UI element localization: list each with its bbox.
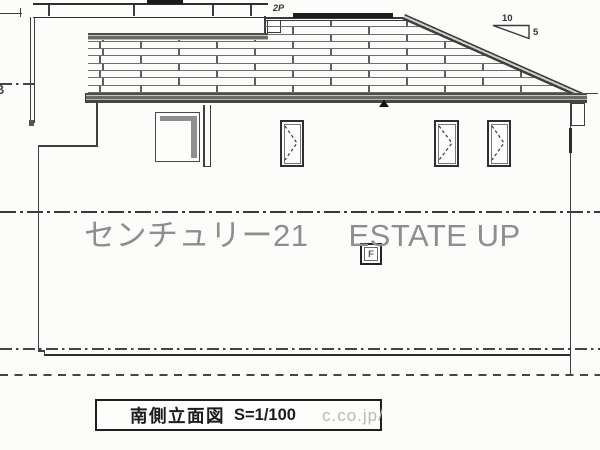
parapet-tick (133, 5, 135, 16)
eave-fascia-band (85, 93, 587, 103)
parapet-top-dark-bar (147, 0, 183, 4)
ground-line (0, 374, 600, 376)
left-margin-glyph-clip: B (0, 81, 6, 96)
floor-label-2p: 2P (273, 3, 284, 13)
casement-window (487, 120, 511, 167)
roof-tile-row (88, 49, 585, 56)
slope-indicator-triangle (492, 24, 532, 41)
slope-rise-label: 5 (533, 27, 538, 38)
triangle-marker (379, 100, 389, 107)
solar-panel-bar (293, 13, 393, 19)
parapet-tick (212, 5, 214, 16)
roof-tile-row (88, 78, 585, 85)
vent-pipe-foot (203, 166, 211, 168)
casement-opening-mark (489, 122, 509, 165)
casement-window (434, 120, 459, 167)
downspout (571, 103, 585, 126)
foundation-line (44, 354, 570, 357)
wall-box-window-frame (160, 116, 197, 159)
wall-box-window (155, 112, 200, 162)
slope-run-label: 10 (502, 13, 513, 24)
brand-watermark: センチュリー21ESTATE UP (84, 210, 521, 255)
datum-line-1fl (0, 348, 600, 350)
elevation-drawing: B 2P 10 (0, 0, 600, 450)
drawing-title: 南側立面図 (130, 403, 225, 428)
casement-window (280, 120, 304, 167)
watermark-url-fragment: c.co.jp/ (322, 406, 384, 426)
roof-tile-row (88, 71, 585, 78)
parapet-tick (250, 5, 252, 16)
left-margin-glyph: B (0, 82, 4, 96)
vent-pipe-line (203, 105, 205, 167)
parapet-left-wall (30, 17, 36, 123)
top-left-datum-tick (20, 8, 22, 17)
wall-left-main (38, 145, 40, 351)
drawing-scale: S=1/100 (234, 406, 296, 425)
wall-right-thick-segment (569, 128, 572, 153)
wall-left-upper-vertical (96, 103, 98, 146)
parapet-wall-foot (29, 120, 34, 126)
roof-tile-row (88, 86, 585, 93)
casement-opening-mark (282, 122, 302, 165)
parapet-band (33, 3, 268, 18)
casement-opening-mark (436, 122, 457, 165)
parapet-tick (48, 5, 50, 16)
vent-pipe-line (210, 105, 212, 167)
roof-upper-capping-band (88, 33, 268, 40)
datum-line-eave-right-stub (586, 93, 600, 95)
wall-left-step-horizontal (38, 145, 98, 147)
roof-tile-row (88, 42, 585, 49)
watermark-brand-en: ESTATE UP (348, 218, 520, 253)
watermark-brand-jp: センチュリー21 (84, 218, 308, 253)
